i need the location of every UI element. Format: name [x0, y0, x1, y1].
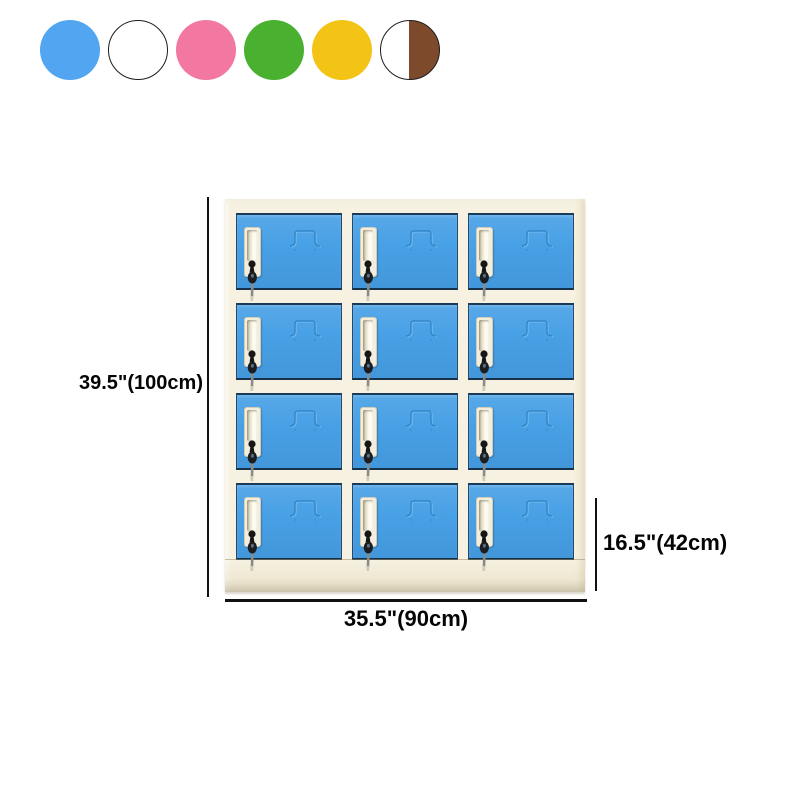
cabinet-base — [225, 559, 585, 592]
locker-cabinet — [225, 199, 585, 592]
door-handle — [476, 497, 493, 547]
locker-door — [352, 483, 458, 560]
color-swatch-yellow[interactable] — [312, 20, 372, 80]
door-handle — [476, 407, 493, 457]
key-icon — [244, 451, 259, 483]
handle-recess — [479, 320, 489, 351]
handle-recess — [363, 500, 373, 531]
door-handle — [476, 317, 493, 367]
color-swatch-white[interactable] — [108, 20, 168, 80]
handle-recess — [363, 410, 373, 441]
depth-dimension-label: 16.5"(42cm) — [603, 530, 727, 556]
name-card-emboss — [401, 225, 443, 253]
key-icon — [360, 451, 375, 483]
key-icon — [244, 541, 259, 573]
locker-door — [236, 303, 342, 380]
door-handle — [360, 497, 377, 547]
key-icon — [244, 271, 259, 303]
locker-door — [468, 483, 574, 560]
key-icon — [476, 541, 491, 573]
locker-door — [352, 393, 458, 470]
color-swatch-pink[interactable] — [176, 20, 236, 80]
door-handle — [360, 317, 377, 367]
handle-recess — [247, 410, 257, 441]
key-icon — [244, 361, 259, 393]
locker-door — [468, 393, 574, 470]
handle-recess — [247, 500, 257, 531]
height-dimension-label: 39.5"(100cm) — [53, 372, 203, 395]
name-card-emboss — [285, 225, 327, 253]
door-handle — [476, 227, 493, 277]
locker-door — [468, 213, 574, 290]
door-handle — [244, 317, 261, 367]
key-icon — [476, 361, 491, 393]
color-swatch-white-brown[interactable] — [380, 20, 440, 80]
locker-door — [236, 483, 342, 560]
name-card-emboss — [401, 315, 443, 343]
color-swatch-blue[interactable] — [40, 20, 100, 80]
door-handle — [244, 497, 261, 547]
handle-recess — [479, 230, 489, 261]
name-card-emboss — [401, 495, 443, 523]
locker-door — [236, 393, 342, 470]
locker-door — [352, 213, 458, 290]
key-icon — [360, 271, 375, 303]
door-handle — [360, 407, 377, 457]
locker-door — [352, 303, 458, 380]
key-icon — [360, 541, 375, 573]
name-card-emboss — [401, 405, 443, 433]
handle-recess — [479, 410, 489, 441]
door-handle — [244, 227, 261, 277]
depth-dimension-line — [595, 498, 597, 591]
handle-recess — [247, 230, 257, 261]
name-card-emboss — [517, 225, 559, 253]
handle-recess — [363, 320, 373, 351]
key-icon — [476, 271, 491, 303]
key-icon — [360, 361, 375, 393]
width-dimension-label: 35.5"(90cm) — [225, 606, 587, 632]
key-icon — [476, 451, 491, 483]
handle-recess — [363, 230, 373, 261]
name-card-emboss — [517, 495, 559, 523]
locker-doors-grid — [225, 199, 585, 560]
product-image: 39.5"(100cm) — [0, 0, 800, 800]
name-card-emboss — [517, 405, 559, 433]
width-dimension-line — [225, 599, 587, 602]
name-card-emboss — [285, 315, 327, 343]
locker-door — [236, 213, 342, 290]
handle-recess — [479, 500, 489, 531]
color-swatches — [40, 20, 440, 80]
height-dimension-line — [207, 197, 209, 597]
name-card-emboss — [517, 315, 559, 343]
handle-recess — [247, 320, 257, 351]
name-card-emboss — [285, 495, 327, 523]
door-handle — [360, 227, 377, 277]
color-swatch-green[interactable] — [244, 20, 304, 80]
locker-door — [468, 303, 574, 380]
name-card-emboss — [285, 405, 327, 433]
door-handle — [244, 407, 261, 457]
